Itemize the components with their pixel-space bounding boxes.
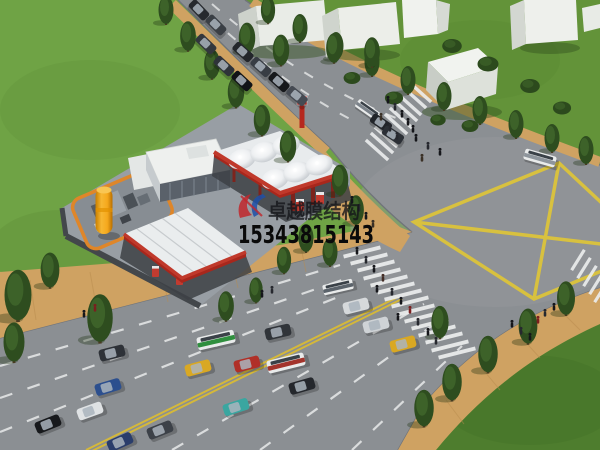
pedestrian (520, 327, 523, 335)
bush (442, 39, 462, 53)
pedestrian (415, 134, 418, 142)
pedestrian (427, 142, 430, 150)
bush (520, 79, 540, 93)
pedestrian (382, 274, 385, 282)
pedestrian (553, 303, 556, 311)
pedestrian (389, 124, 392, 132)
pedestrian (529, 333, 532, 341)
tank-band (96, 208, 113, 212)
bush (430, 115, 445, 126)
pedestrian (401, 110, 404, 118)
pedestrian (400, 297, 403, 305)
pedestrian (376, 285, 379, 293)
building-block-5 (582, 4, 600, 32)
pedestrian (94, 304, 97, 312)
bush (478, 57, 499, 72)
pedestrian (537, 316, 540, 324)
tank-top (97, 187, 112, 194)
watermark-phone-number: 15343815143 (238, 220, 374, 249)
pedestrian (83, 310, 86, 318)
bush (553, 102, 571, 115)
pedestrian (409, 306, 412, 314)
pedestrian (271, 286, 274, 294)
pedestrian (435, 337, 438, 345)
scene-svg: 卓越膜结构 15343815143 (0, 0, 600, 450)
pedestrian (391, 288, 394, 296)
pedestrian (439, 148, 442, 156)
pedestrian (394, 103, 397, 111)
pedestrian (544, 309, 547, 317)
rendering-canvas: 卓越膜结构 15343815143 (0, 0, 600, 450)
pedestrian (417, 318, 420, 326)
pedestrian (373, 265, 376, 273)
building-shadow (520, 42, 580, 54)
pedestrian (396, 132, 399, 140)
pedestrian (365, 212, 368, 220)
pedestrian (387, 96, 390, 104)
pedestrian (261, 290, 264, 298)
pedestrian (427, 328, 430, 336)
pedestrian (407, 118, 410, 126)
pedestrian (397, 313, 400, 321)
watermark: 卓越膜结构 15343815143 (238, 194, 374, 249)
pedestrian (380, 113, 383, 121)
fuel-pump (152, 266, 159, 277)
pedestrian (421, 154, 424, 162)
pedestrian (511, 320, 514, 328)
bush (344, 72, 361, 84)
pedestrian (412, 125, 415, 133)
pedestrian (365, 256, 368, 264)
bush (462, 120, 479, 132)
grass-mottle (0, 60, 180, 160)
